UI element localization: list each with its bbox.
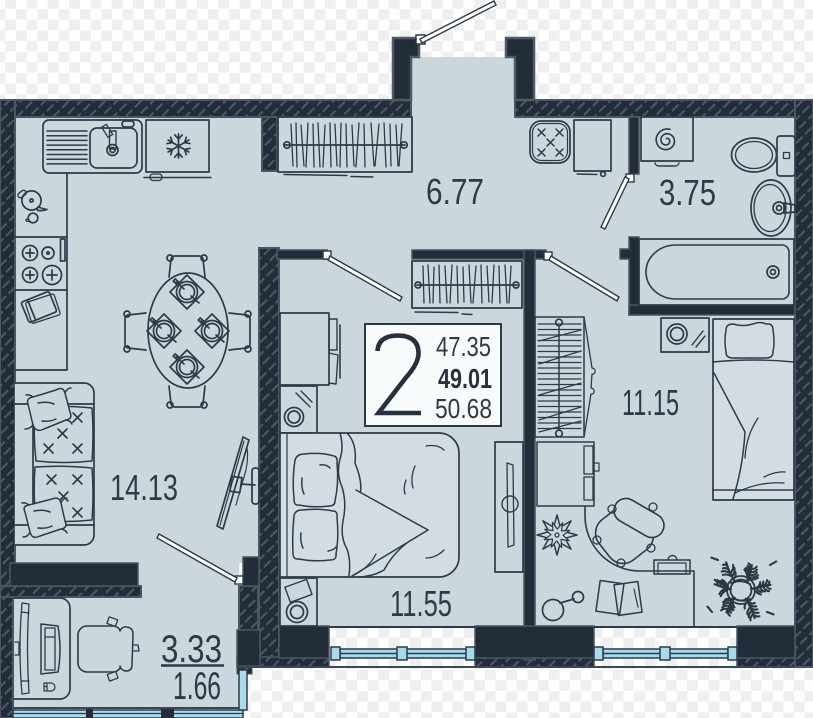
svg-text:1.66: 1.66 — [173, 665, 221, 708]
svg-text:49.01: 49.01 — [438, 363, 492, 394]
svg-text:6.77: 6.77 — [426, 171, 484, 212]
svg-text:11.55: 11.55 — [390, 583, 452, 624]
svg-text:11.15: 11.15 — [622, 382, 679, 423]
svg-text:3.75: 3.75 — [659, 172, 716, 213]
svg-text:47.35: 47.35 — [436, 331, 491, 362]
svg-text:14.13: 14.13 — [110, 467, 178, 508]
svg-text:50.68: 50.68 — [435, 393, 492, 424]
